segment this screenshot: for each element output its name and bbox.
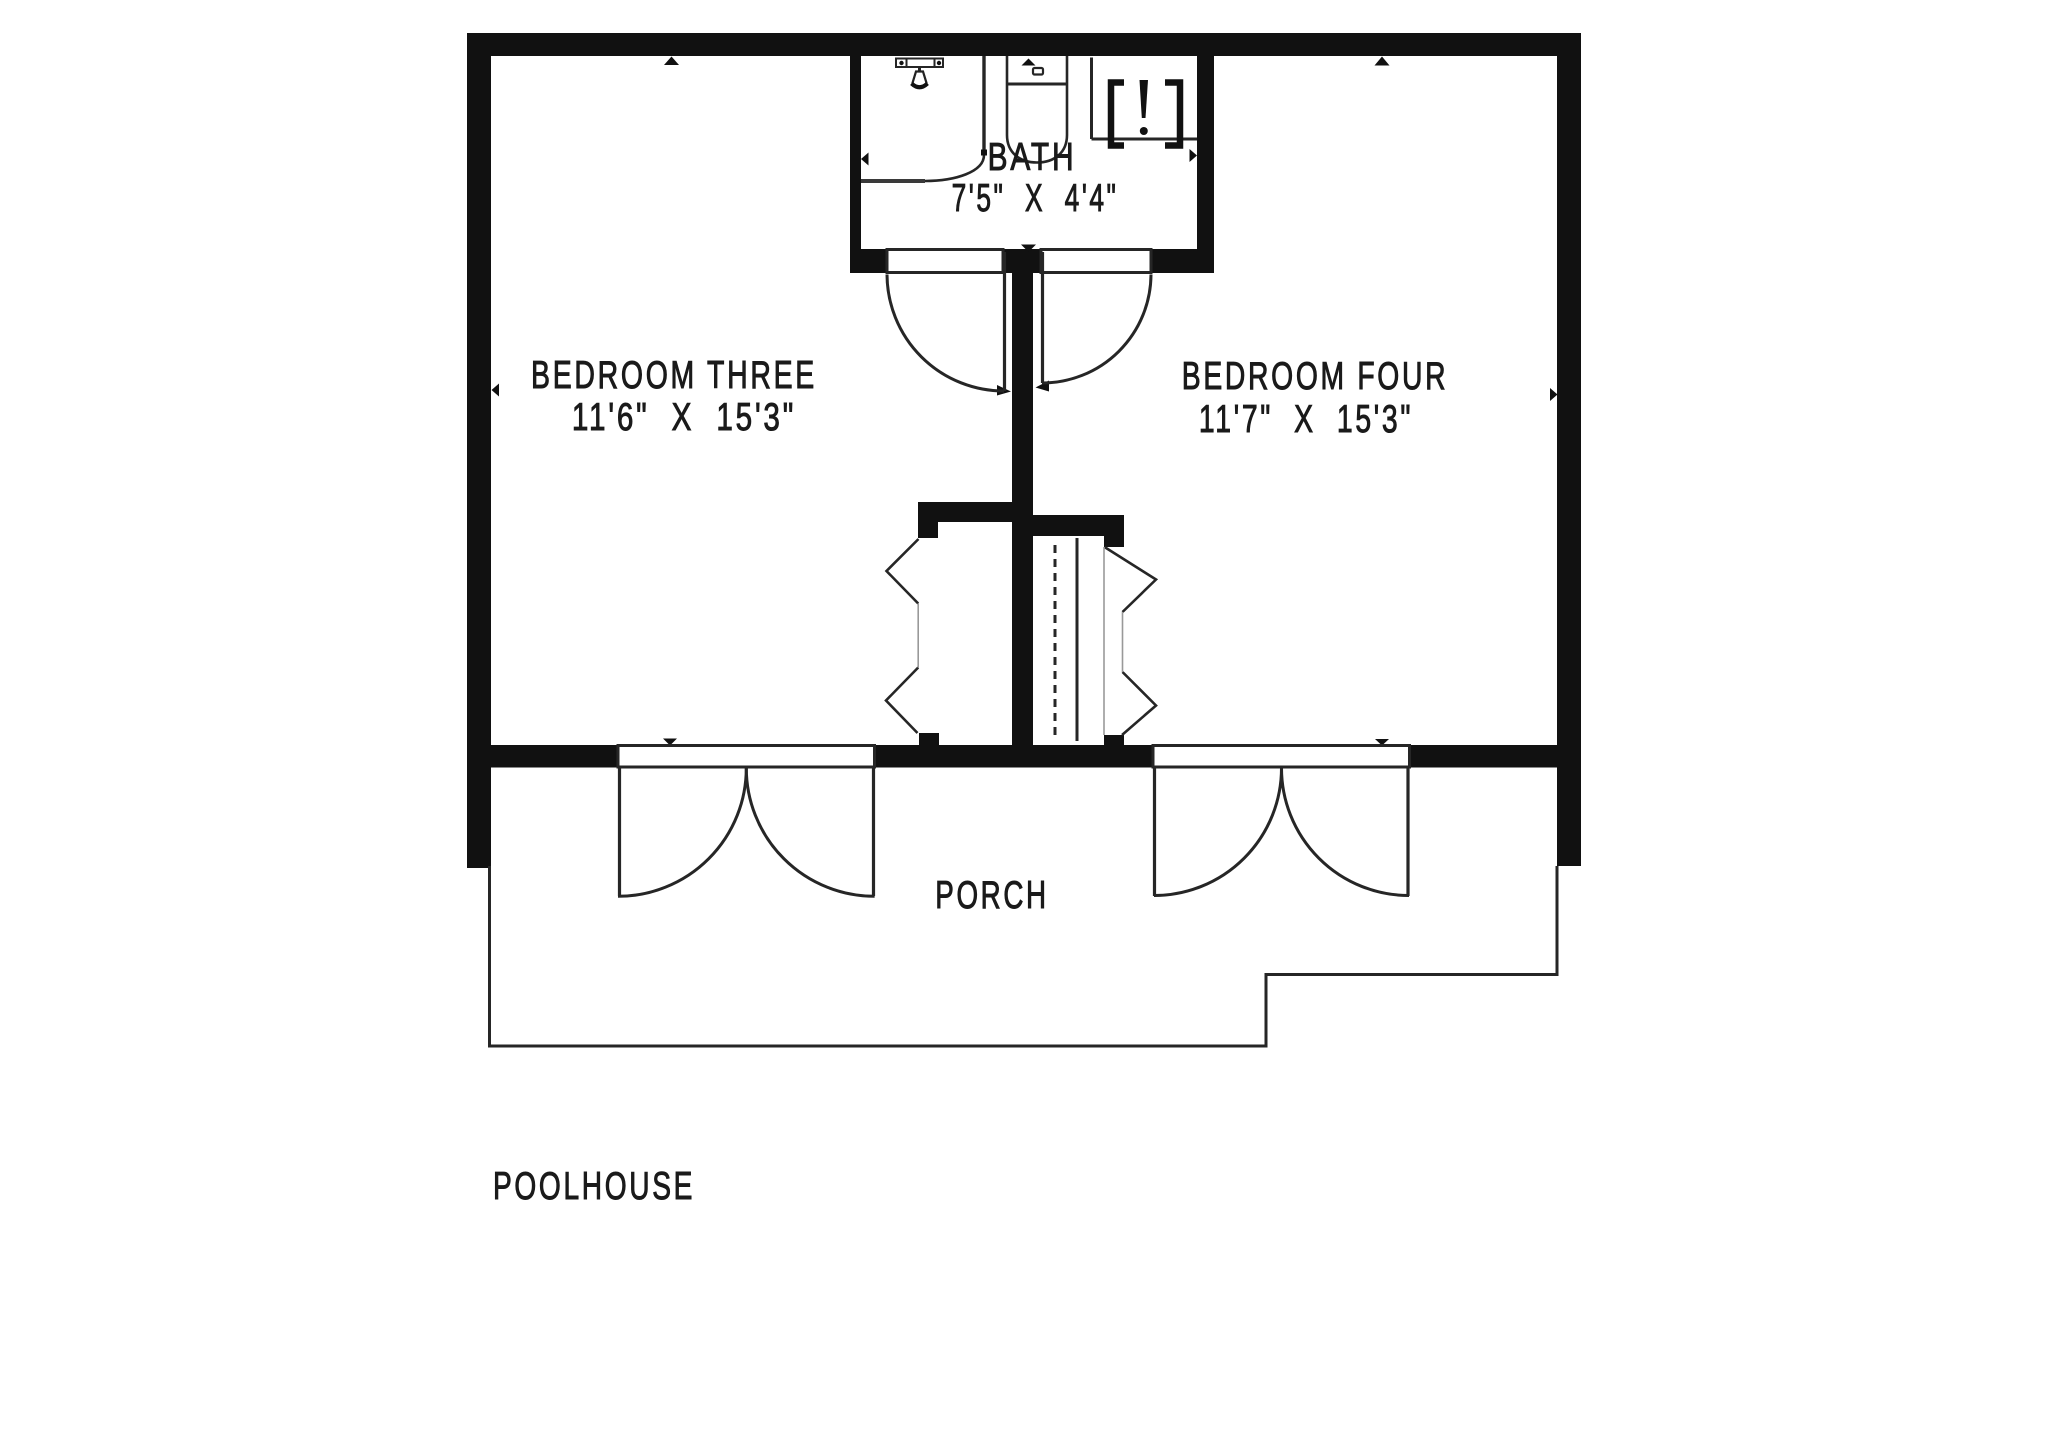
svg-text:BATH: BATH bbox=[988, 136, 1077, 179]
svg-text:PORCH: PORCH bbox=[935, 873, 1048, 917]
svg-text:11'6" X 15'3": 11'6" X 15'3" bbox=[572, 396, 796, 439]
svg-text:11'7" X 15'3": 11'7" X 15'3" bbox=[1199, 398, 1413, 441]
svg-text:POOLHOUSE: POOLHOUSE bbox=[493, 1165, 695, 1209]
svg-text:7'5" X 4'4": 7'5" X 4'4" bbox=[952, 177, 1119, 220]
svg-text:BEDROOM THREE: BEDROOM THREE bbox=[531, 354, 817, 397]
svg-text:BEDROOM FOUR: BEDROOM FOUR bbox=[1182, 355, 1449, 398]
